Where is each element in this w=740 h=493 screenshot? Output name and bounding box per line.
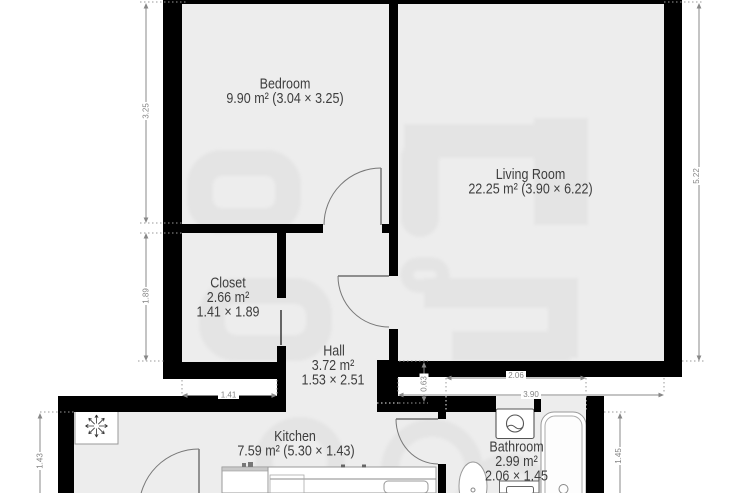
svg-text:22.25 m² (3.90 × 6.22): 22.25 m² (3.90 × 6.22) <box>468 181 592 198</box>
svg-text:5.22: 5.22 <box>692 168 701 184</box>
svg-text:2.06: 2.06 <box>508 371 524 380</box>
svg-text:1.45: 1.45 <box>614 448 623 464</box>
svg-text:1.41 × 1.89: 1.41 × 1.89 <box>197 303 260 320</box>
svg-text:7.59 m² (5.30 × 1.43): 7.59 m² (5.30 × 1.43) <box>237 442 354 459</box>
svg-text:1.89: 1.89 <box>142 288 151 304</box>
svg-text:2.06 × 1.45: 2.06 × 1.45 <box>485 468 548 485</box>
svg-text:9.90 m² (3.04 × 3.25): 9.90 m² (3.04 × 3.25) <box>226 90 343 107</box>
svg-text:1.41: 1.41 <box>221 391 237 400</box>
svg-text:0.63: 0.63 <box>420 376 429 392</box>
svg-text:1.43: 1.43 <box>36 453 45 469</box>
svg-text:3.90: 3.90 <box>523 390 539 399</box>
svg-text:1.53 × 2.51: 1.53 × 2.51 <box>302 371 365 388</box>
svg-text:3.25: 3.25 <box>142 103 151 119</box>
